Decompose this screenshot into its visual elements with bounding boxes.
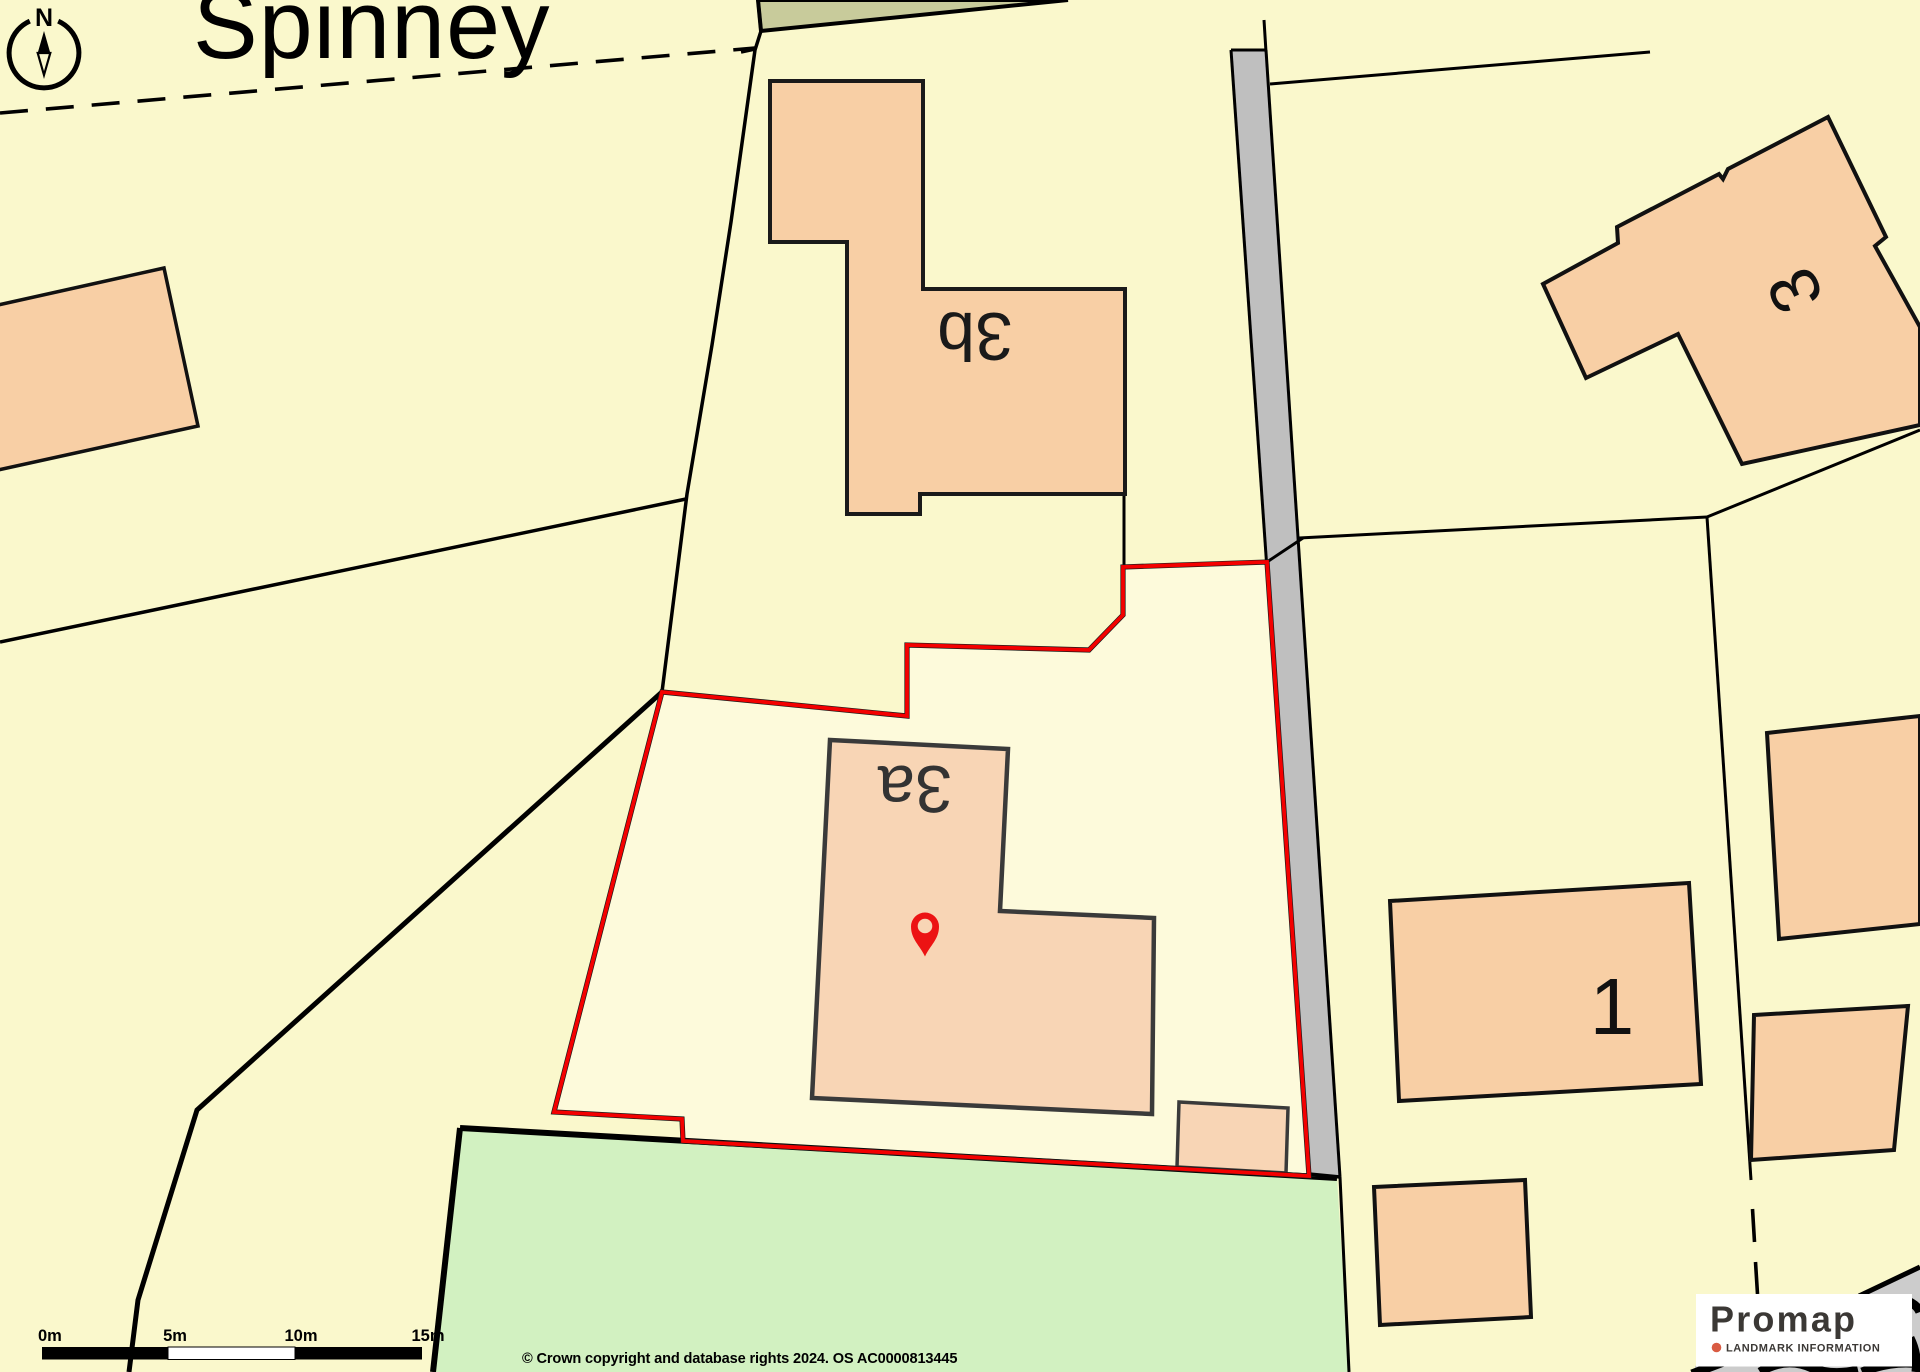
- svg-text:5m: 5m: [163, 1327, 187, 1345]
- svg-text:10m: 10m: [284, 1327, 317, 1345]
- svg-text:3b: 3b: [937, 298, 1013, 374]
- svg-text:0m: 0m: [38, 1327, 62, 1345]
- svg-text:Spinney: Spinney: [193, 0, 551, 79]
- svg-text:Promap: Promap: [1710, 1299, 1857, 1340]
- svg-text:LANDMARK INFORMATION: LANDMARK INFORMATION: [1726, 1343, 1880, 1355]
- svg-text:15m: 15m: [411, 1327, 444, 1345]
- svg-text:3a: 3a: [877, 751, 952, 826]
- svg-text:© Crown copyright and database: © Crown copyright and database rights 20…: [522, 1351, 957, 1367]
- svg-text:N: N: [35, 4, 53, 32]
- svg-text:1: 1: [1590, 962, 1635, 1051]
